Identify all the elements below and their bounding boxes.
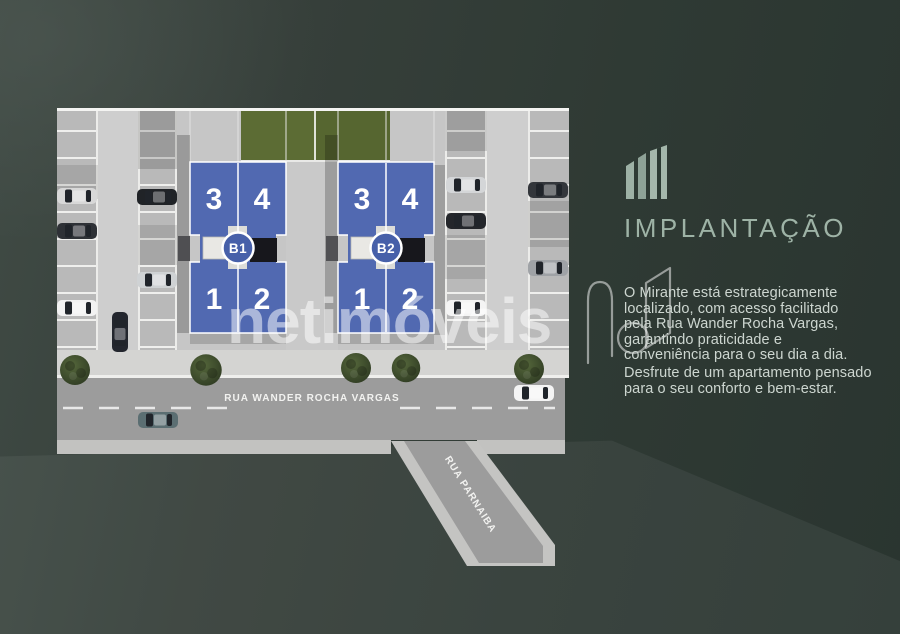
car-icon (57, 223, 97, 239)
car-icon (57, 188, 97, 204)
unit-label: 1 (206, 283, 223, 316)
description-paragraph-1: O Mirante está estrategicamente localiza… (624, 286, 874, 364)
far-sidewalk-left (57, 440, 391, 454)
tree-icon (392, 354, 421, 383)
watermark-text: netimóveis (227, 284, 551, 358)
side-street: RUA PARNAIBA (391, 441, 555, 566)
car-icon (112, 312, 128, 352)
unit-label: 4 (254, 183, 271, 216)
brand-logo-icon (624, 145, 672, 201)
unit-label: 3 (206, 183, 223, 216)
car-icon (528, 182, 568, 198)
far-sidewalk-right (477, 440, 565, 454)
car-icon (138, 412, 178, 428)
tree-icon (514, 354, 544, 384)
b1-core-shadow-left (178, 236, 190, 261)
curb-line (57, 375, 569, 378)
street-label-main: RUA WANDER ROCHA VARGAS (224, 393, 399, 404)
tree-icon (60, 355, 90, 385)
car-icon (446, 177, 486, 193)
car-icon (446, 213, 486, 229)
car-icon (57, 300, 97, 316)
unit-label: 4 (402, 183, 419, 216)
tree-icon (190, 354, 222, 386)
description-paragraph-2: Desfrute de um apartamento pensado para … (624, 366, 874, 397)
grass-area (241, 111, 390, 162)
unit-label: 3 (354, 183, 371, 216)
lot-top-edge (57, 108, 569, 111)
car-icon (137, 189, 177, 205)
car-icon (514, 385, 554, 401)
block-badge-label: B2 (377, 241, 395, 256)
marketing-image: 3 4 1 2 B1 3 4 1 2 B2 (0, 0, 900, 634)
b2-core-shadow-left (326, 236, 338, 261)
section-title: IMPLANTAÇÃO (624, 213, 847, 244)
car-icon (137, 272, 177, 288)
car-icon (528, 260, 568, 276)
block-badge-label: B1 (229, 241, 247, 256)
